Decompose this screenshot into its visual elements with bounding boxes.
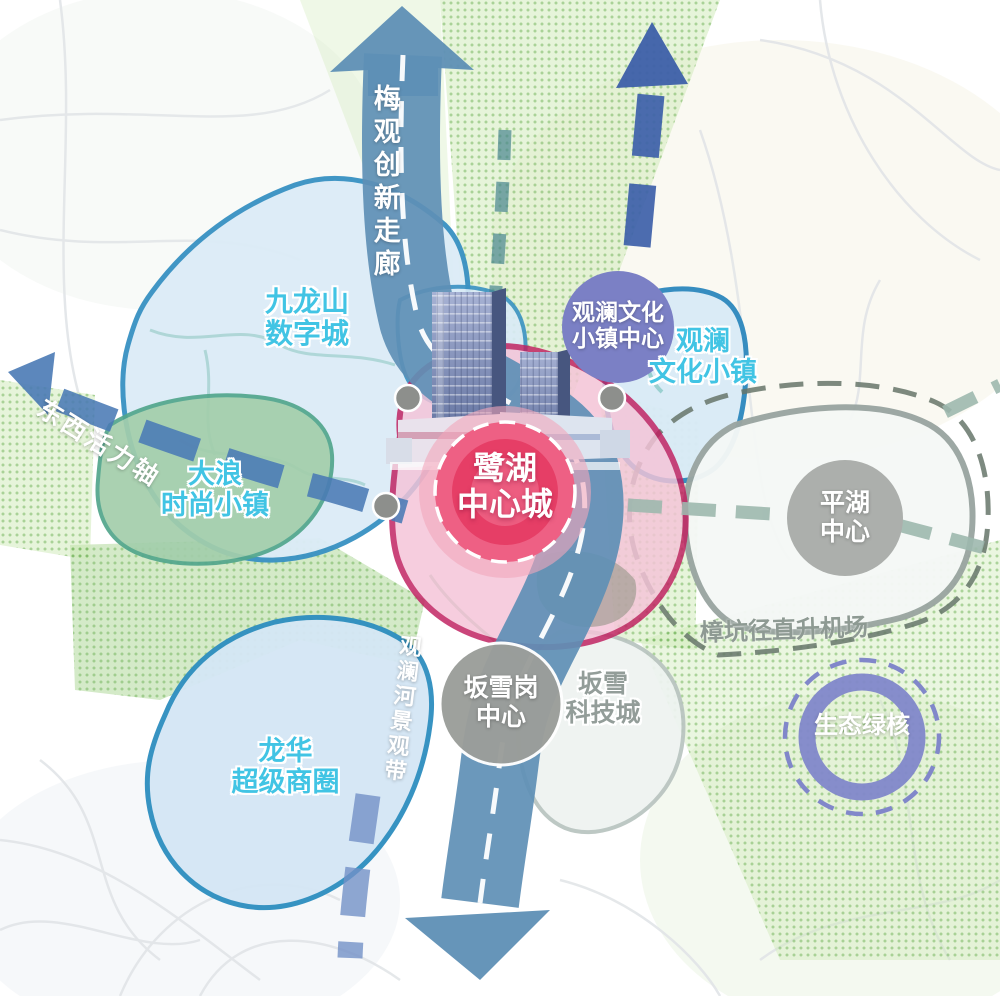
node-pinghu-center — [787, 460, 903, 576]
node-banxuegang-center — [440, 643, 562, 765]
map-canvas — [0, 0, 1000, 996]
corridor-arrow-down — [405, 910, 550, 980]
bullseye-luhu-central — [419, 406, 591, 578]
planning-map: 梅观创新走廊 东西活力轴 观澜河景观带 九龙山 数字城 大浪 时尚小镇 龙华 超… — [0, 0, 1000, 996]
badge-guanlan-town-center — [562, 271, 674, 383]
